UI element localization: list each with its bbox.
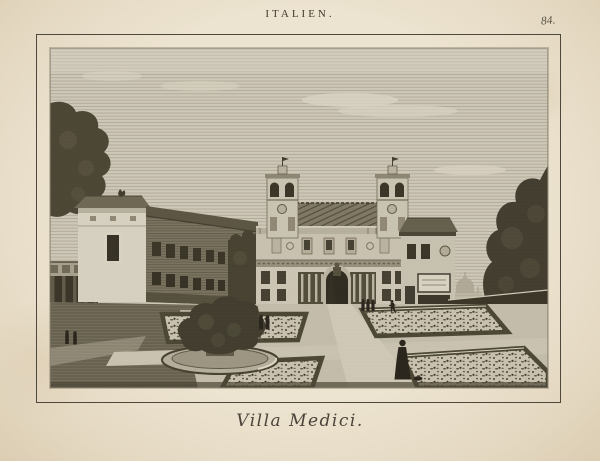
plate-number: 84.	[541, 14, 556, 27]
plate-texture	[50, 48, 548, 388]
book-page: ITALIEN. 84.	[0, 0, 600, 461]
engraving	[50, 48, 548, 388]
page-header: ITALIEN.	[0, 8, 600, 20]
caption: Villa Medici.	[0, 411, 600, 431]
